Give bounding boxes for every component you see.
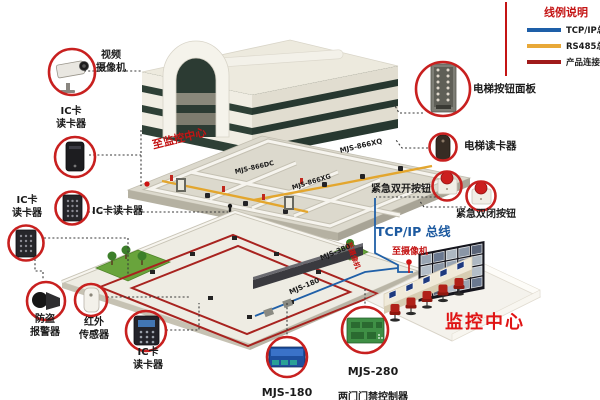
rs485-line-swatch: [527, 44, 561, 48]
emergency-open-label: 紧急双开按钮: [371, 184, 431, 197]
ic-reader-top-label: IC卡 读卡器: [50, 106, 92, 131]
ic-reader-lower-label: IC卡 读卡器: [6, 195, 48, 220]
product-line-label: 产品连接线: [566, 56, 600, 68]
emergency-close-label: 紧急双闭按钮: [456, 209, 516, 222]
mjs180-controller-device: [267, 337, 307, 377]
legend-row-rs485: RS485总线: [527, 40, 600, 52]
monitor-link-dot: [144, 181, 149, 186]
mjs280-name: 两门门禁控制器: [318, 392, 428, 400]
ic-reader-top-device: [55, 137, 95, 177]
tcpip-bus-annotation: TCP/IP 总线: [376, 224, 451, 240]
mjs280-controller-device: [342, 307, 388, 353]
ic-reader-side-label: IC卡读卡器: [92, 206, 143, 219]
mjs280-model: MJS-280: [318, 365, 428, 379]
diagram-canvas: 视频 摄像机 IC卡 读卡器 IC卡读卡器 IC卡 读卡器 防盗 报警器 红外 …: [0, 0, 600, 400]
emergency-close-button-device: [467, 182, 496, 211]
product-line-swatch: [527, 60, 561, 64]
mjs280-label: MJS-280 两门门禁控制器: [318, 351, 428, 400]
arch-entrance: [163, 41, 229, 137]
burglar-alarm-label: 防盗 报警器: [22, 314, 68, 339]
ic-reader-bottom-label: IC卡 读卡器: [126, 347, 170, 372]
video-camera-label: 视频 摄像机: [92, 50, 130, 75]
elevator-panel-device: [416, 62, 470, 116]
legend-row-tcpip: TCP/IP总线: [527, 24, 600, 36]
elevator-reader-device: [430, 134, 457, 161]
ic-reader-keypad-device: [56, 192, 89, 225]
ir-sensor-label: 红外 传感器: [73, 317, 115, 342]
tcpip-line-swatch: [527, 28, 561, 32]
elevator-reader-label: 电梯读卡器: [464, 140, 517, 153]
legend-row-product: 产品连接线: [527, 56, 600, 68]
legend: 线例说明 TCP/IP总线 RS485总线 产品连接线: [505, 2, 600, 76]
legend-title: 线例说明: [527, 4, 600, 20]
rs485-line-label: RS485总线: [566, 40, 600, 52]
ic-reader-keypad-lower-device: [9, 226, 44, 261]
monitor-center-title: 监控中心: [445, 312, 525, 335]
ic-reader-bottom-device: [126, 311, 166, 351]
to-camera-room-annotation: 至摄像机: [392, 247, 428, 258]
tcpip-line-label: TCP/IP总线: [566, 24, 600, 36]
elevator-panel-label: 电梯按钮面板: [473, 83, 536, 96]
video-camera-device: [49, 49, 95, 95]
